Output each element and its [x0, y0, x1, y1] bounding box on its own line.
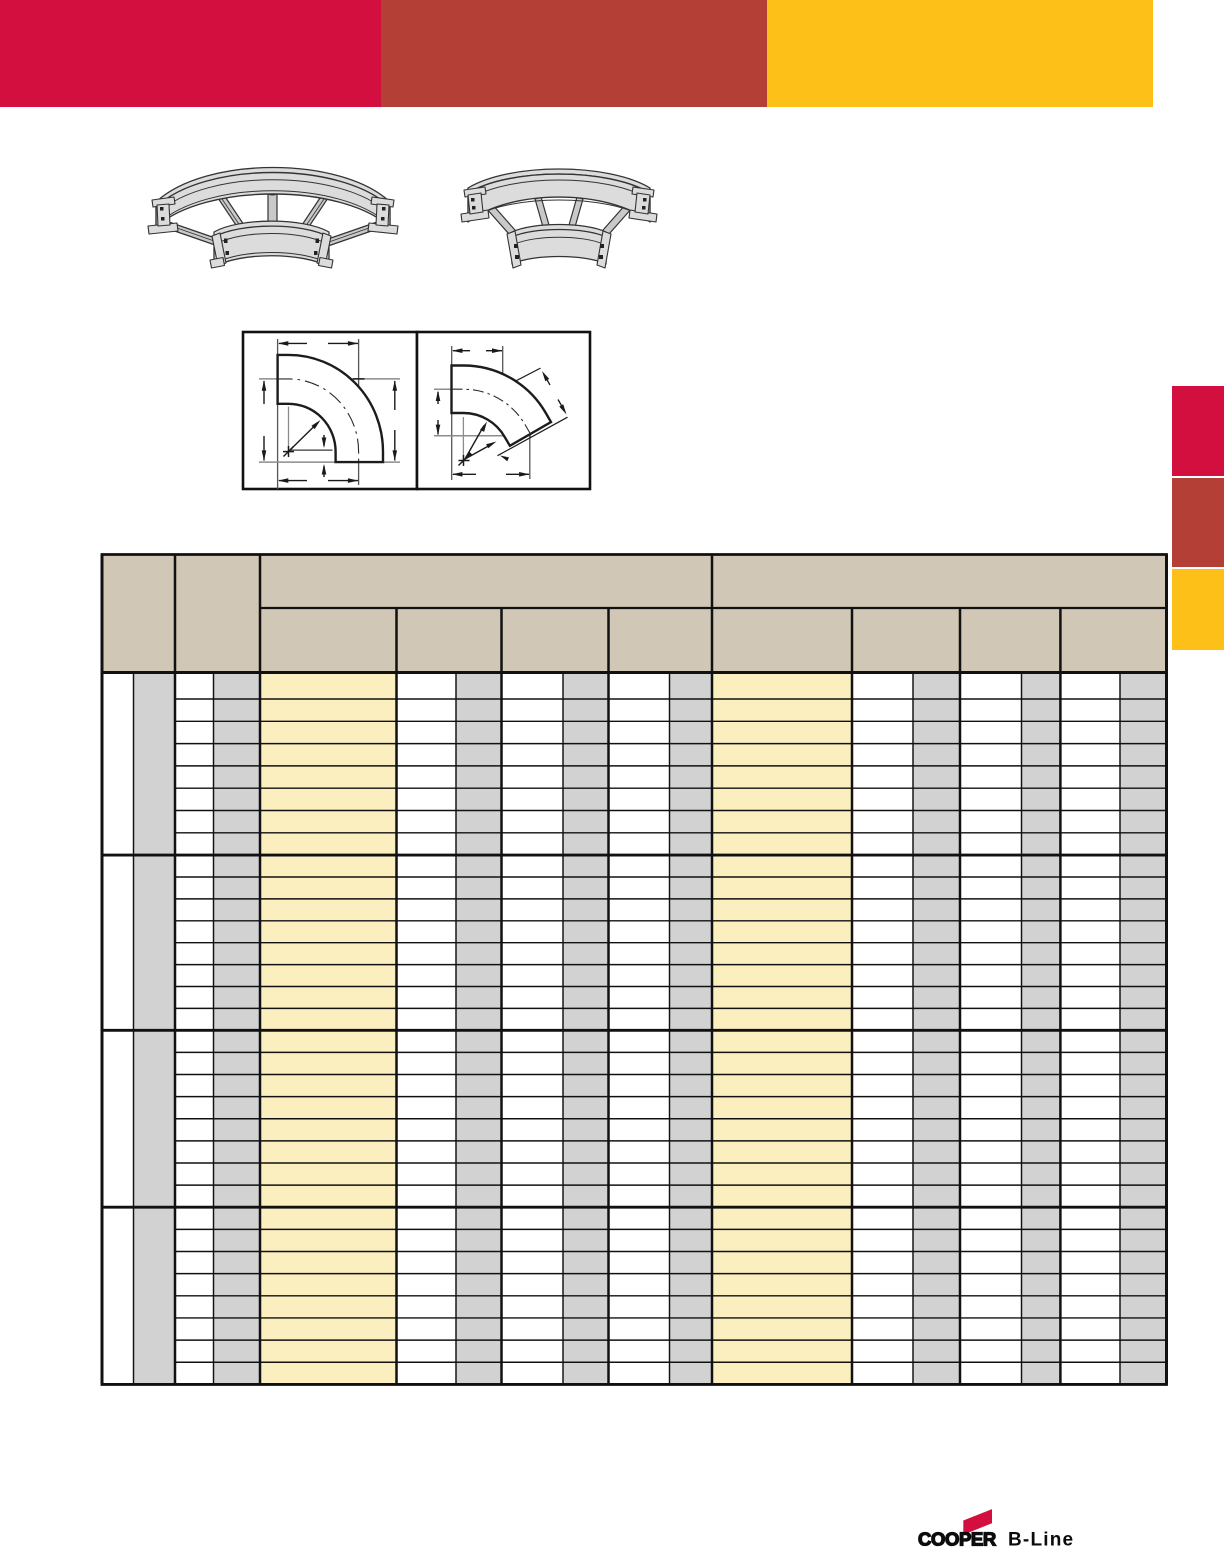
- svg-text:COOPER: COOPER: [918, 1529, 996, 1550]
- svg-text:B-Line: B-Line: [1008, 1530, 1074, 1551]
